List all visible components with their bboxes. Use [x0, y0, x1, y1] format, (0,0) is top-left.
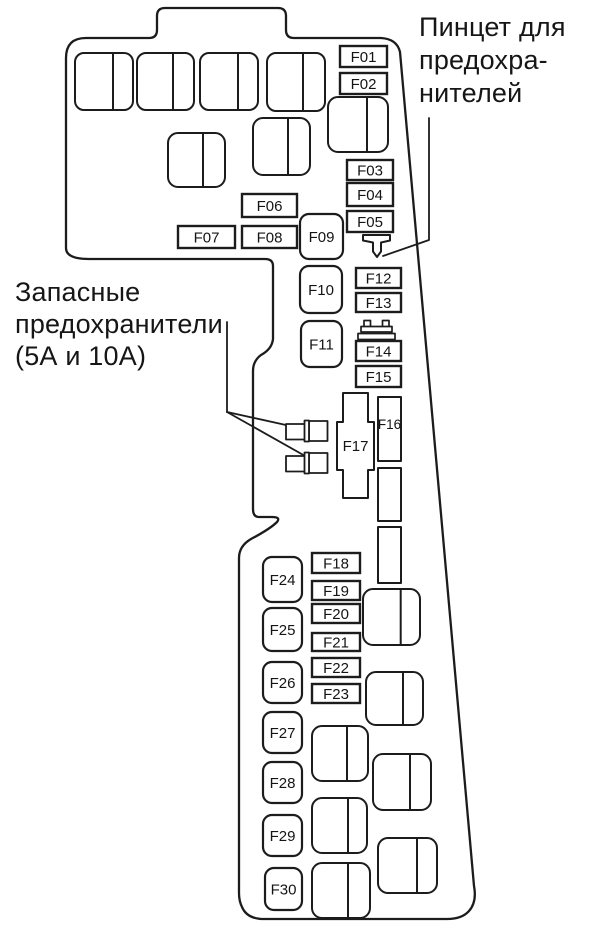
- fuse-f01: F01: [340, 46, 387, 67]
- fuse-f04: F04: [347, 183, 393, 206]
- fuse-f11: F11: [301, 321, 342, 367]
- fuse-f15: F15: [356, 366, 401, 387]
- fuse-label: F08: [257, 230, 283, 247]
- fuse-label: F20: [323, 606, 349, 623]
- annotation-line: предохранители: [15, 308, 223, 340]
- fuse-label: F02: [351, 76, 377, 93]
- fuse-f10: F10: [300, 266, 342, 313]
- fuse-f26: F26: [263, 662, 302, 703]
- fuse-f16: F16: [378, 397, 401, 461]
- fuse-f06: F06: [242, 194, 297, 217]
- fuse-label: F03: [357, 163, 383, 180]
- fuse-f12: F12: [356, 268, 401, 288]
- fuse-label: F07: [194, 230, 220, 247]
- annotation-line: предохра-: [419, 44, 566, 77]
- spare-fuse-holder-icon: [286, 453, 328, 474]
- fuse-f03: F03: [347, 160, 393, 180]
- fuse-label: F24: [270, 572, 296, 589]
- fuse-f13: F13: [356, 293, 401, 312]
- annotation-line: Запасные: [15, 276, 223, 308]
- fuse-label: F10: [308, 282, 334, 299]
- fuse-label: F09: [309, 229, 335, 246]
- fuse-f19: F19: [312, 581, 360, 600]
- fuse-label: F27: [270, 725, 296, 742]
- relay-slot: [378, 468, 401, 583]
- annotation-line: нителей: [419, 77, 566, 110]
- fuse-label: F23: [323, 686, 349, 703]
- fuse-f28: F28: [263, 762, 302, 803]
- fuse-label: F30: [271, 882, 297, 899]
- fuse-f09: F09: [300, 214, 343, 259]
- fuse-label: F13: [366, 295, 392, 312]
- fuse-f21: F21: [312, 633, 360, 652]
- fuse-label: F01: [351, 49, 377, 66]
- fuse-f18: F18: [312, 553, 360, 573]
- fuse-f20: F20: [312, 604, 360, 623]
- fuse-block: [75, 53, 325, 111]
- diagram-canvas: F17 F16 F01 F02 F03 F04 F05 F06 F07: [0, 0, 606, 928]
- fuse-label: F17: [343, 438, 369, 455]
- fuse-label: F06: [257, 198, 283, 215]
- spare-fuses-annotation: Запасные предохранители (5А и 10А): [15, 276, 223, 372]
- fuse-f25: F25: [263, 608, 302, 651]
- fuse-f30: F30: [265, 868, 302, 910]
- fuse-label: F12: [366, 271, 392, 288]
- annotation-line: Пинцет для: [419, 11, 566, 44]
- fuse-label: F04: [357, 187, 383, 204]
- fuse-tweezers-icon: [363, 235, 390, 257]
- fuse-box-diagram: F17 F16 F01 F02 F03 F04 F05 F06 F07: [0, 0, 606, 928]
- fuse-label: F14: [366, 344, 392, 361]
- fuse-f14: F14: [356, 341, 401, 361]
- fuse-label: F28: [270, 775, 296, 792]
- fuse-label: F29: [270, 828, 296, 845]
- fuse-label: F25: [270, 622, 296, 639]
- fuse-f24: F24: [263, 557, 302, 602]
- fuse-label: F26: [270, 675, 296, 692]
- fuse-label: F21: [323, 635, 349, 652]
- fuse-f27: F27: [263, 712, 302, 753]
- fuse-label: F05: [357, 214, 383, 231]
- fuse-label: F22: [323, 660, 349, 677]
- fuse-label: F18: [323, 556, 349, 573]
- fuse-f22: F22: [312, 658, 360, 677]
- spare-fuse-holder-icon: [286, 421, 328, 442]
- fuse-label: F16: [378, 417, 401, 432]
- fuse-label: F15: [366, 369, 392, 386]
- fuse-f05: F05: [347, 211, 393, 232]
- fuse-f08: F08: [242, 226, 297, 248]
- fuse-puller-icon: [358, 321, 395, 340]
- tweezers-annotation: Пинцет для предохра- нителей: [419, 11, 566, 110]
- fuse-f02: F02: [340, 73, 387, 94]
- annotation-line: (5А и 10А): [15, 340, 223, 372]
- fuse-label: F11: [309, 337, 334, 354]
- fuse-f29: F29: [263, 815, 302, 856]
- fuse-f23: F23: [312, 684, 360, 703]
- fuse-f17: F17: [337, 393, 374, 498]
- fuse-f07: F07: [178, 226, 235, 248]
- fuse-label: F19: [323, 583, 349, 600]
